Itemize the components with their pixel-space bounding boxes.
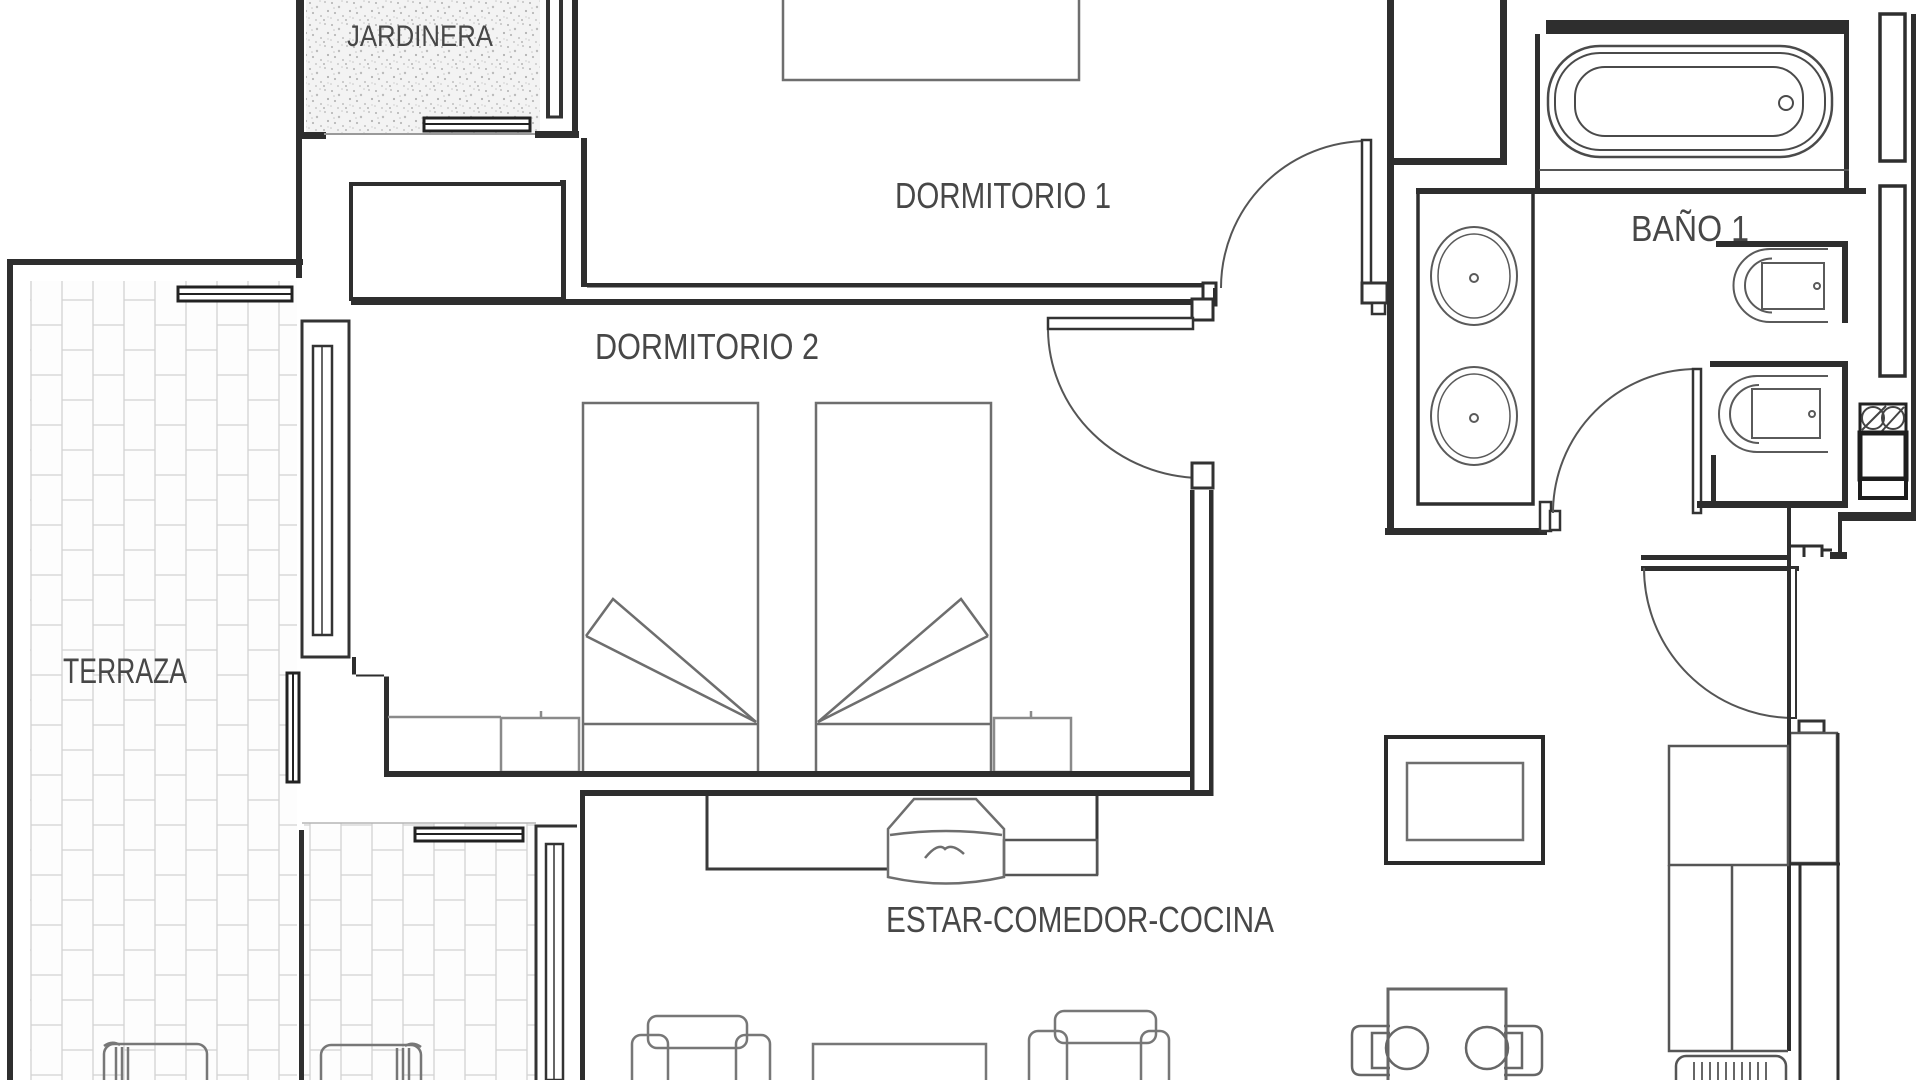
svg-text:DORMITORIO 2: DORMITORIO 2 <box>595 326 819 367</box>
svg-text:ESTAR-COMEDOR-COCINA: ESTAR-COMEDOR-COCINA <box>886 899 1274 940</box>
svg-text:DORMITORIO 1: DORMITORIO 1 <box>895 175 1111 216</box>
svg-text:JARDINERA: JARDINERA <box>347 20 493 53</box>
svg-text:TERRAZA: TERRAZA <box>63 652 187 691</box>
